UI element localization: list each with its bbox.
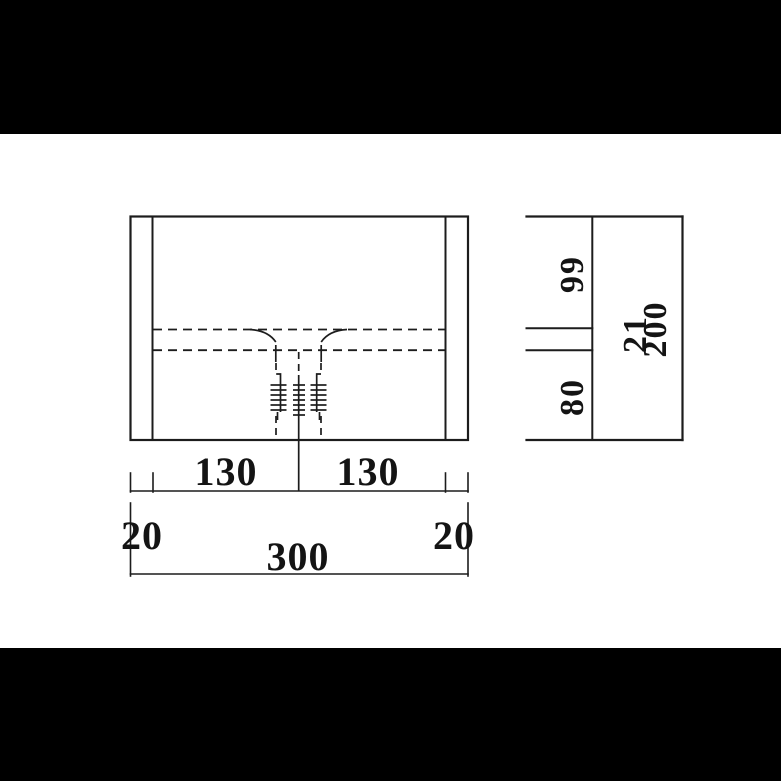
dim-left-panel-20: 20: [121, 513, 163, 558]
dim-overall-width-300: 300: [267, 534, 330, 579]
dim-upper-section-99: 99: [554, 255, 591, 293]
front-view: [131, 217, 469, 492]
screenshot-stage: 130 130 20 300 20 99 80 21 200: [0, 0, 781, 781]
shelf-projection-lines: [527, 328, 593, 350]
overall-width-dimension: 20 300 20: [121, 503, 475, 579]
slot-fillet-arcs: [250, 330, 347, 343]
side-dimensions: 99 80 21 200: [554, 255, 674, 416]
hidden-connector-detail: [250, 330, 347, 492]
dim-lower-section-80: 80: [554, 378, 591, 416]
dim-right-shelf-130: 130: [337, 449, 400, 494]
dim-right-panel-20: 20: [433, 513, 475, 558]
technical-drawing: 130 130 20 300 20 99 80 21 200: [0, 0, 781, 781]
dim-overall-height-200: 200: [637, 301, 674, 358]
hidden-shelf-lines: [153, 330, 445, 351]
dim-left-shelf-130: 130: [195, 449, 258, 494]
